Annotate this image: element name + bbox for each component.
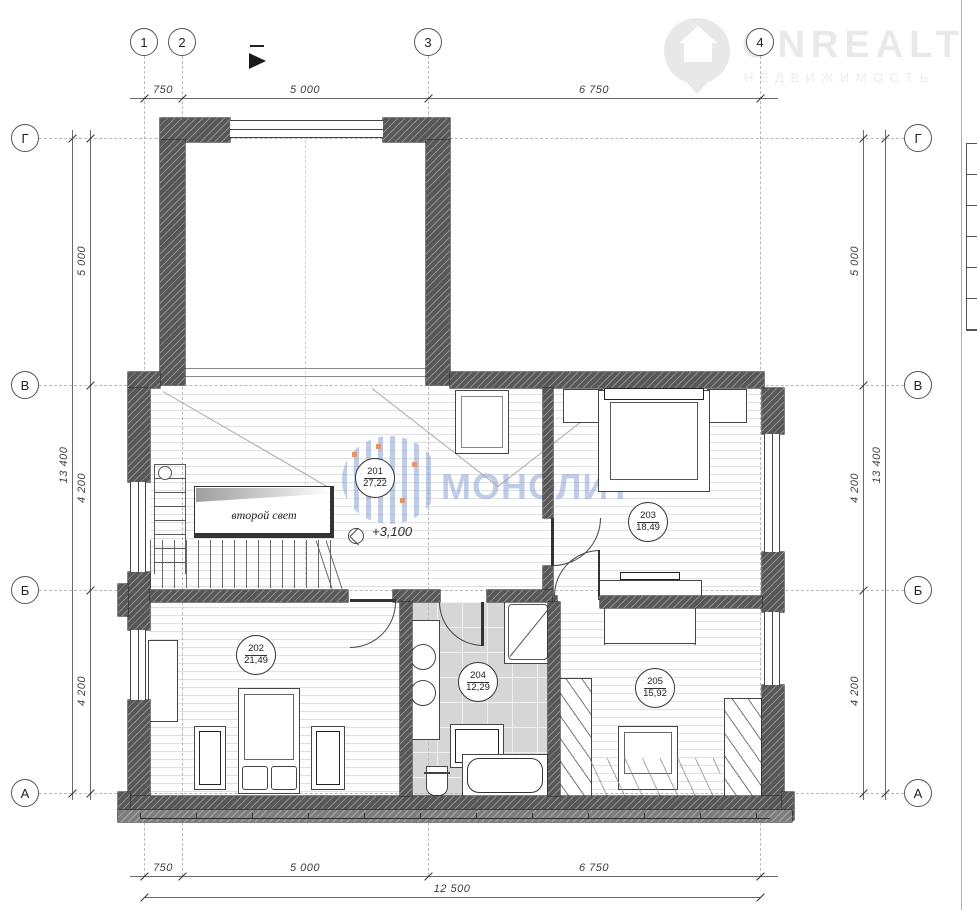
tv-on-dresser [620,572,680,580]
exterior-wall [426,140,450,385]
floor-hatch-marks [590,758,720,796]
logo-dot-orange [376,444,381,449]
onrealt-house-roof [679,26,717,43]
room-number: 204 [467,671,489,683]
axis-bubble-b-right: Б [904,576,932,604]
interior-wall [393,590,440,602]
dim-text: 5 000 [255,862,355,874]
axis-bubble-b-left: Б [11,576,39,604]
dim-text: 6 750 [544,862,644,874]
nightstand [707,389,747,423]
exterior-wall [128,388,150,482]
exterior-wall [128,572,150,630]
section-marker-bar [250,45,264,47]
onrealt-house-body [684,42,712,62]
exterior-wall [762,685,784,796]
exterior-wall [762,388,784,434]
window [764,612,780,685]
bed-headboard [604,388,704,400]
toilet [426,766,448,796]
partition-wall [543,388,553,518]
logo-dot-orange [400,498,405,503]
dim-text: 4 200 [849,458,861,518]
pillow [271,766,297,790]
room-label-203: 203 18,49 [628,502,668,542]
dimension-line-total [885,130,886,800]
void-edge-beam-line [185,376,428,377]
toilet-tank-line [424,772,450,774]
pillow [242,766,268,790]
cabinet-inner [461,396,503,448]
dim-text: 5 000 [255,84,355,96]
exterior-wall [450,372,764,388]
axis-bubble-2: 2 [168,28,196,56]
axis-bubble-g-right: Г [904,124,932,152]
room-label-201: 201 27,22 [355,458,395,498]
axis-bubble-v-right: В [904,371,932,399]
dim-text: 13 400 [871,430,883,500]
dim-text: 13 400 [58,430,70,500]
dim-text: 4 200 [849,661,861,721]
onrealt-logo-text: ONREALT [742,24,965,67]
room-area: 27,22 [363,479,387,490]
bathtub-inner [467,758,543,793]
exterior-wall [762,552,784,612]
dimension-line-total [72,130,73,800]
closet-hangers [724,698,762,802]
sink [410,644,436,670]
axis-bubble-g-left: Г [11,124,39,152]
window [230,120,383,138]
room-area: 18,49 [636,523,660,534]
dimension-line [90,130,91,800]
exterior-wall [128,700,150,796]
void-edge-beam-line [185,368,428,369]
dim-text: 4 200 [76,458,88,518]
bathroom-wall [548,602,560,796]
title-block-table [966,143,977,331]
dim-text: 750 [145,84,181,96]
room-number: 203 [637,511,659,523]
door-leaf-202 [350,599,396,602]
stair-post-symbol [158,466,172,480]
bathroom-wall [400,602,412,796]
nightstand-inner [199,731,221,785]
exterior-wall [128,372,160,388]
interior-wall [600,596,762,608]
room-label-202: 202 21,49 [236,635,276,675]
door-leaf-205 [598,550,600,596]
room-number: 201 [364,467,386,479]
dim-text: 5 000 [849,231,861,291]
nightstand [563,389,603,423]
bed-mattress [244,694,294,760]
section-marker-flag-icon [249,53,266,69]
exterior-wall-bottom [128,796,784,810]
dimension-line-total [144,897,760,898]
dimension-line [130,98,778,99]
door-leaf-203 [551,518,554,566]
room-label-204: 204 12,29 [458,662,498,702]
room-area: 21,49 [244,656,268,667]
partition-wall [543,566,553,592]
window [130,630,146,700]
bed-mattress [610,402,698,480]
onrealt-logo-subtext: НЕДВИЖИМОСТЬ [744,70,935,85]
axis-bubble-a-left: А [11,779,39,807]
dim-text: 6 750 [544,84,644,96]
void-label: второй свет [200,508,328,523]
railing-ticks [140,813,770,819]
dim-text: 750 [145,862,181,874]
logo-dot-orange [352,452,357,457]
closet-hangers [556,678,592,802]
dimension-line [863,130,864,800]
axis-bubble-1: 1 [130,28,158,56]
axis-bubble-a-right: А [904,779,932,807]
dim-text: 12 500 [402,883,502,895]
door-leaf-204 [481,602,484,646]
interior-wall [487,590,553,602]
axis-bubble-4: 4 [746,28,774,56]
logo-dot-orange [412,462,417,467]
axis-bubble-3: 3 [414,28,442,56]
nightstand-inner [316,731,340,785]
wall-pilaster [118,584,128,616]
floor-plan-page: МОНОЛИТ ONREALT НЕДВИЖИМОСТЬ второй свет… [0,0,977,910]
room-area: 12,29 [466,683,490,694]
dim-text: 4 200 [76,661,88,721]
stair-upper-flight [154,464,186,574]
sheet-border-line [961,0,962,910]
exterior-wall [383,118,450,142]
window [764,434,780,552]
dim-text: 5 000 [76,231,88,291]
dimension-line [130,876,778,877]
onrealt-pin-tail [681,76,713,94]
room-label-205: 205 15,92 [635,668,675,708]
axis-bubble-v-left: В [11,371,39,399]
exterior-wall [160,140,185,385]
room-number: 202 [245,644,267,656]
room-area: 15,92 [643,689,667,700]
room-number: 205 [644,677,666,689]
sink [410,680,436,706]
interior-wall [150,590,348,602]
window [130,482,146,572]
wardrobe [148,640,178,722]
level-mark-text: +3,100 [372,524,412,539]
exterior-wall [160,118,230,142]
